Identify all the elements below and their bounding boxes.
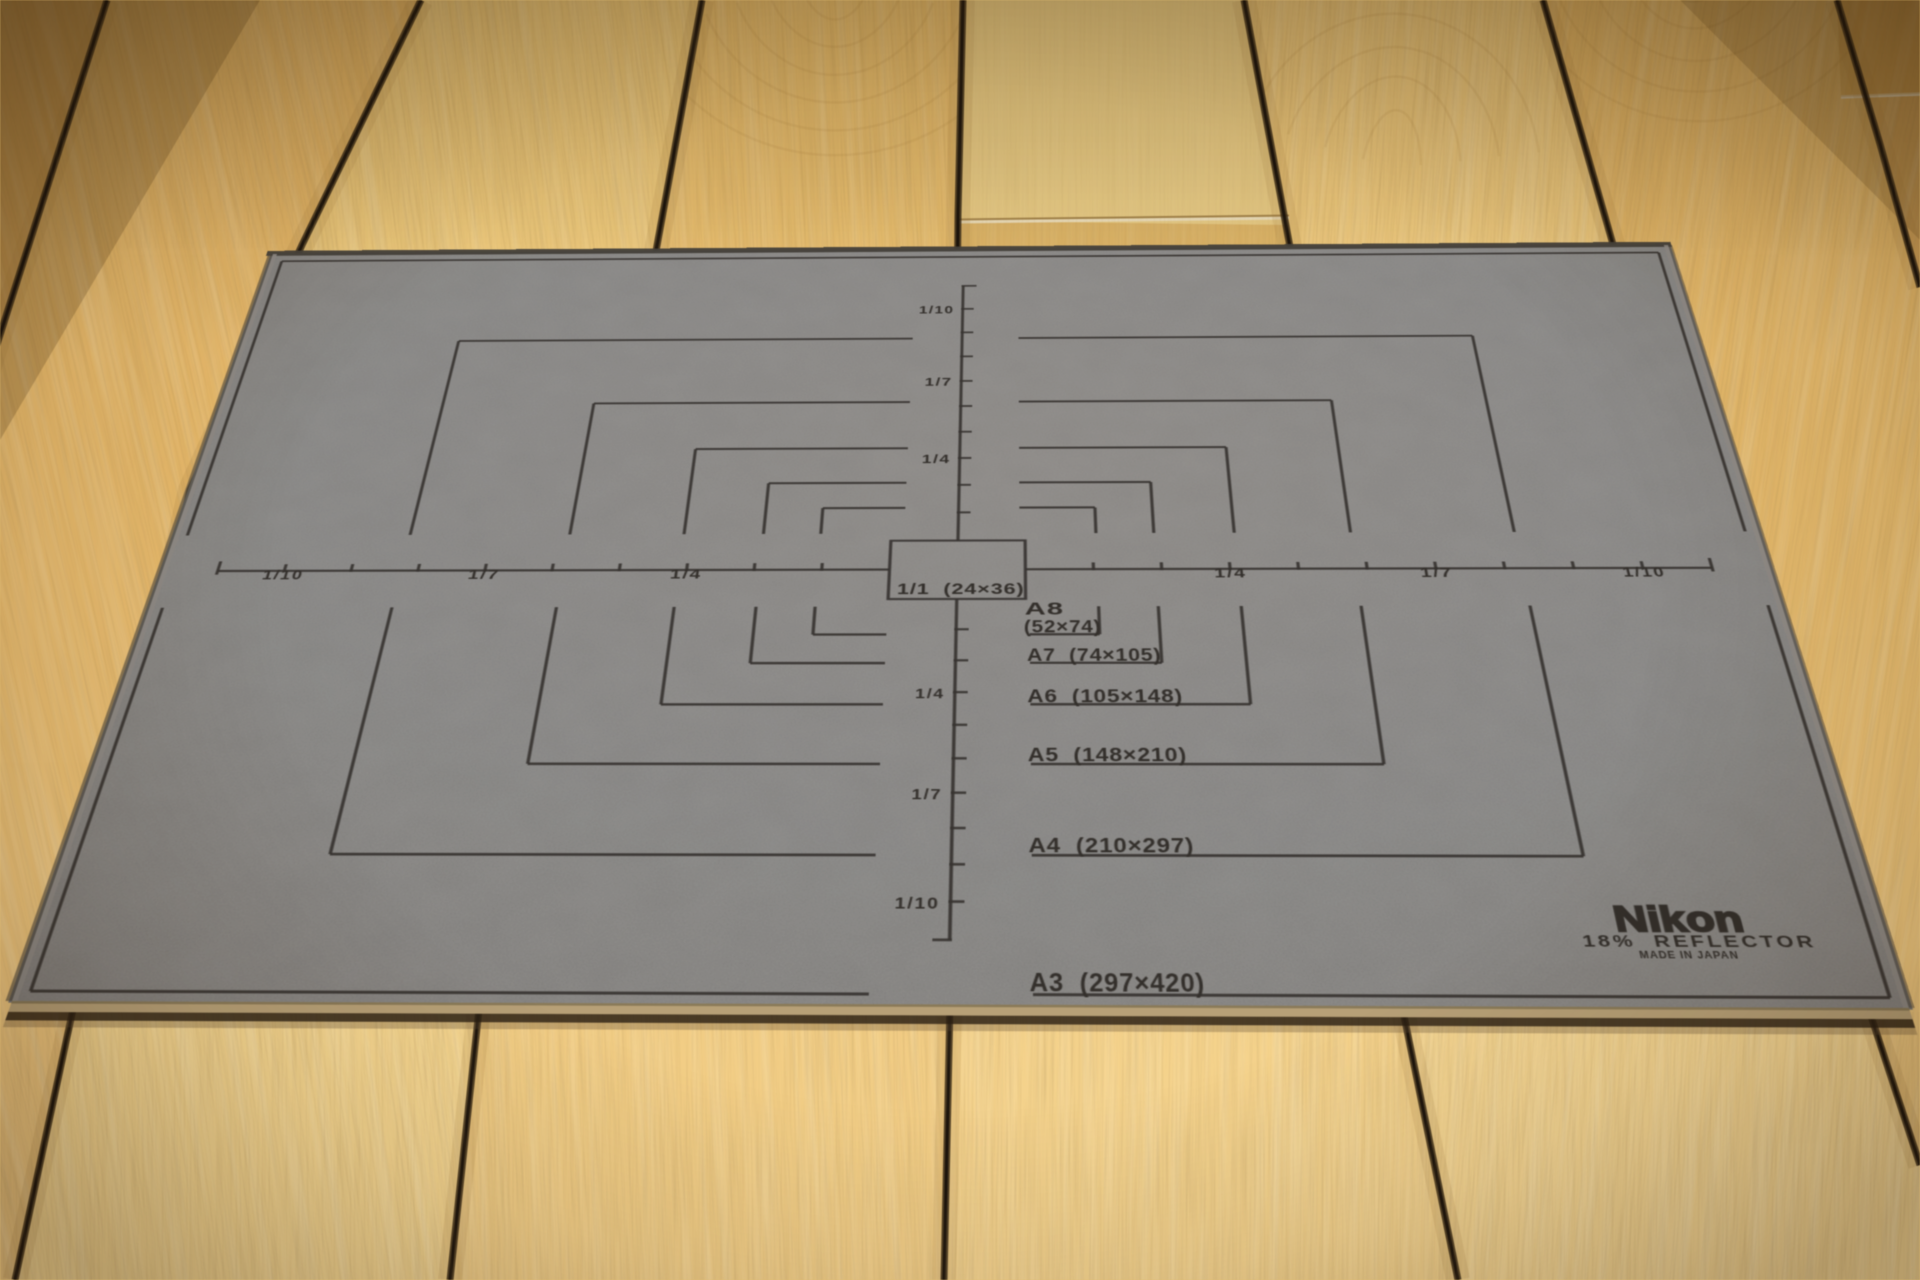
svg-text:A4 (210×297): A4 (210×297) <box>1028 833 1195 858</box>
svg-text:A7 (74×105): A7 (74×105) <box>1027 645 1162 665</box>
svg-text:1/10: 1/10 <box>919 304 955 317</box>
svg-text:1/4: 1/4 <box>1214 566 1248 581</box>
svg-text:1/7: 1/7 <box>924 375 952 389</box>
svg-text:A6 (105×148): A6 (105×148) <box>1027 685 1183 707</box>
svg-text:MADE IN JAPAN: MADE IN JAPAN <box>1638 949 1740 961</box>
svg-text:A3 (297×420): A3 (297×420) <box>1029 969 1205 998</box>
svg-text:1/4: 1/4 <box>922 452 951 467</box>
svg-text:A5 (148×210): A5 (148×210) <box>1028 743 1188 766</box>
svg-text:1/10: 1/10 <box>260 568 305 583</box>
svg-text:1/7: 1/7 <box>466 568 501 583</box>
svg-text:1/10: 1/10 <box>894 894 940 912</box>
svg-text:1/10: 1/10 <box>1621 565 1667 580</box>
svg-text:(52×74): (52×74) <box>1024 617 1102 637</box>
svg-text:A8: A8 <box>1025 599 1065 618</box>
svg-text:1/4: 1/4 <box>915 686 945 701</box>
svg-text:1/1 (24×36): 1/1 (24×36) <box>897 582 1025 598</box>
svg-text:1/4: 1/4 <box>669 567 703 582</box>
svg-text:1/7: 1/7 <box>1419 566 1454 581</box>
svg-text:1/7: 1/7 <box>911 786 942 803</box>
svg-text:18% REFLECTOR: 18% REFLECTOR <box>1581 932 1819 951</box>
